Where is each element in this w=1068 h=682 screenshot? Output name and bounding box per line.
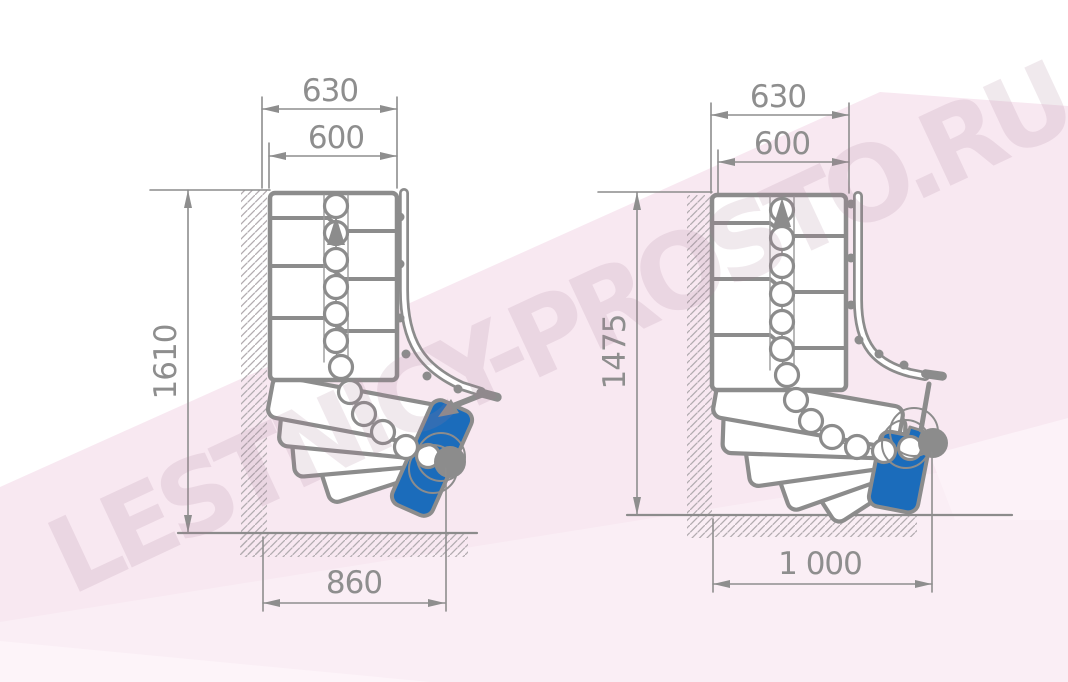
dimension-label-inner-width: 600 <box>754 126 810 162</box>
right-handrail-gap <box>858 196 925 376</box>
right-staircase-diagram: 630 600 1475 1 000 <box>597 79 1012 592</box>
dimension-label-turn-width: 860 <box>326 565 382 601</box>
dimension-label-turn-width: 1 000 <box>778 546 862 582</box>
left-rail-bracket <box>453 395 481 406</box>
dimension-label-total-length: 1475 <box>597 315 633 390</box>
dimension-label-total-length: 1610 <box>148 325 184 400</box>
right-wall-hatch <box>687 195 712 538</box>
left-handrail-outer <box>404 193 481 392</box>
left-wall-hatch <box>241 190 267 557</box>
dimension-label-inner-width: 600 <box>308 120 364 156</box>
right-rail-bracket <box>921 384 929 430</box>
left-staircase-diagram: 630 600 1610 860 <box>148 73 503 611</box>
left-newel-post <box>434 446 466 478</box>
left-handrail-gap <box>404 193 481 392</box>
dimension-label-outer-width: 630 <box>750 79 806 115</box>
staircase-drawing-canvas: 630 600 1610 860 <box>0 0 1068 682</box>
right-newel-post <box>918 428 948 458</box>
dimension-label-outer-width: 630 <box>302 73 358 109</box>
right-floor-hatch <box>712 515 917 537</box>
left-floor-hatch <box>240 533 468 557</box>
staircase-plan-diagrams: 630 600 1610 860 <box>0 0 1068 682</box>
